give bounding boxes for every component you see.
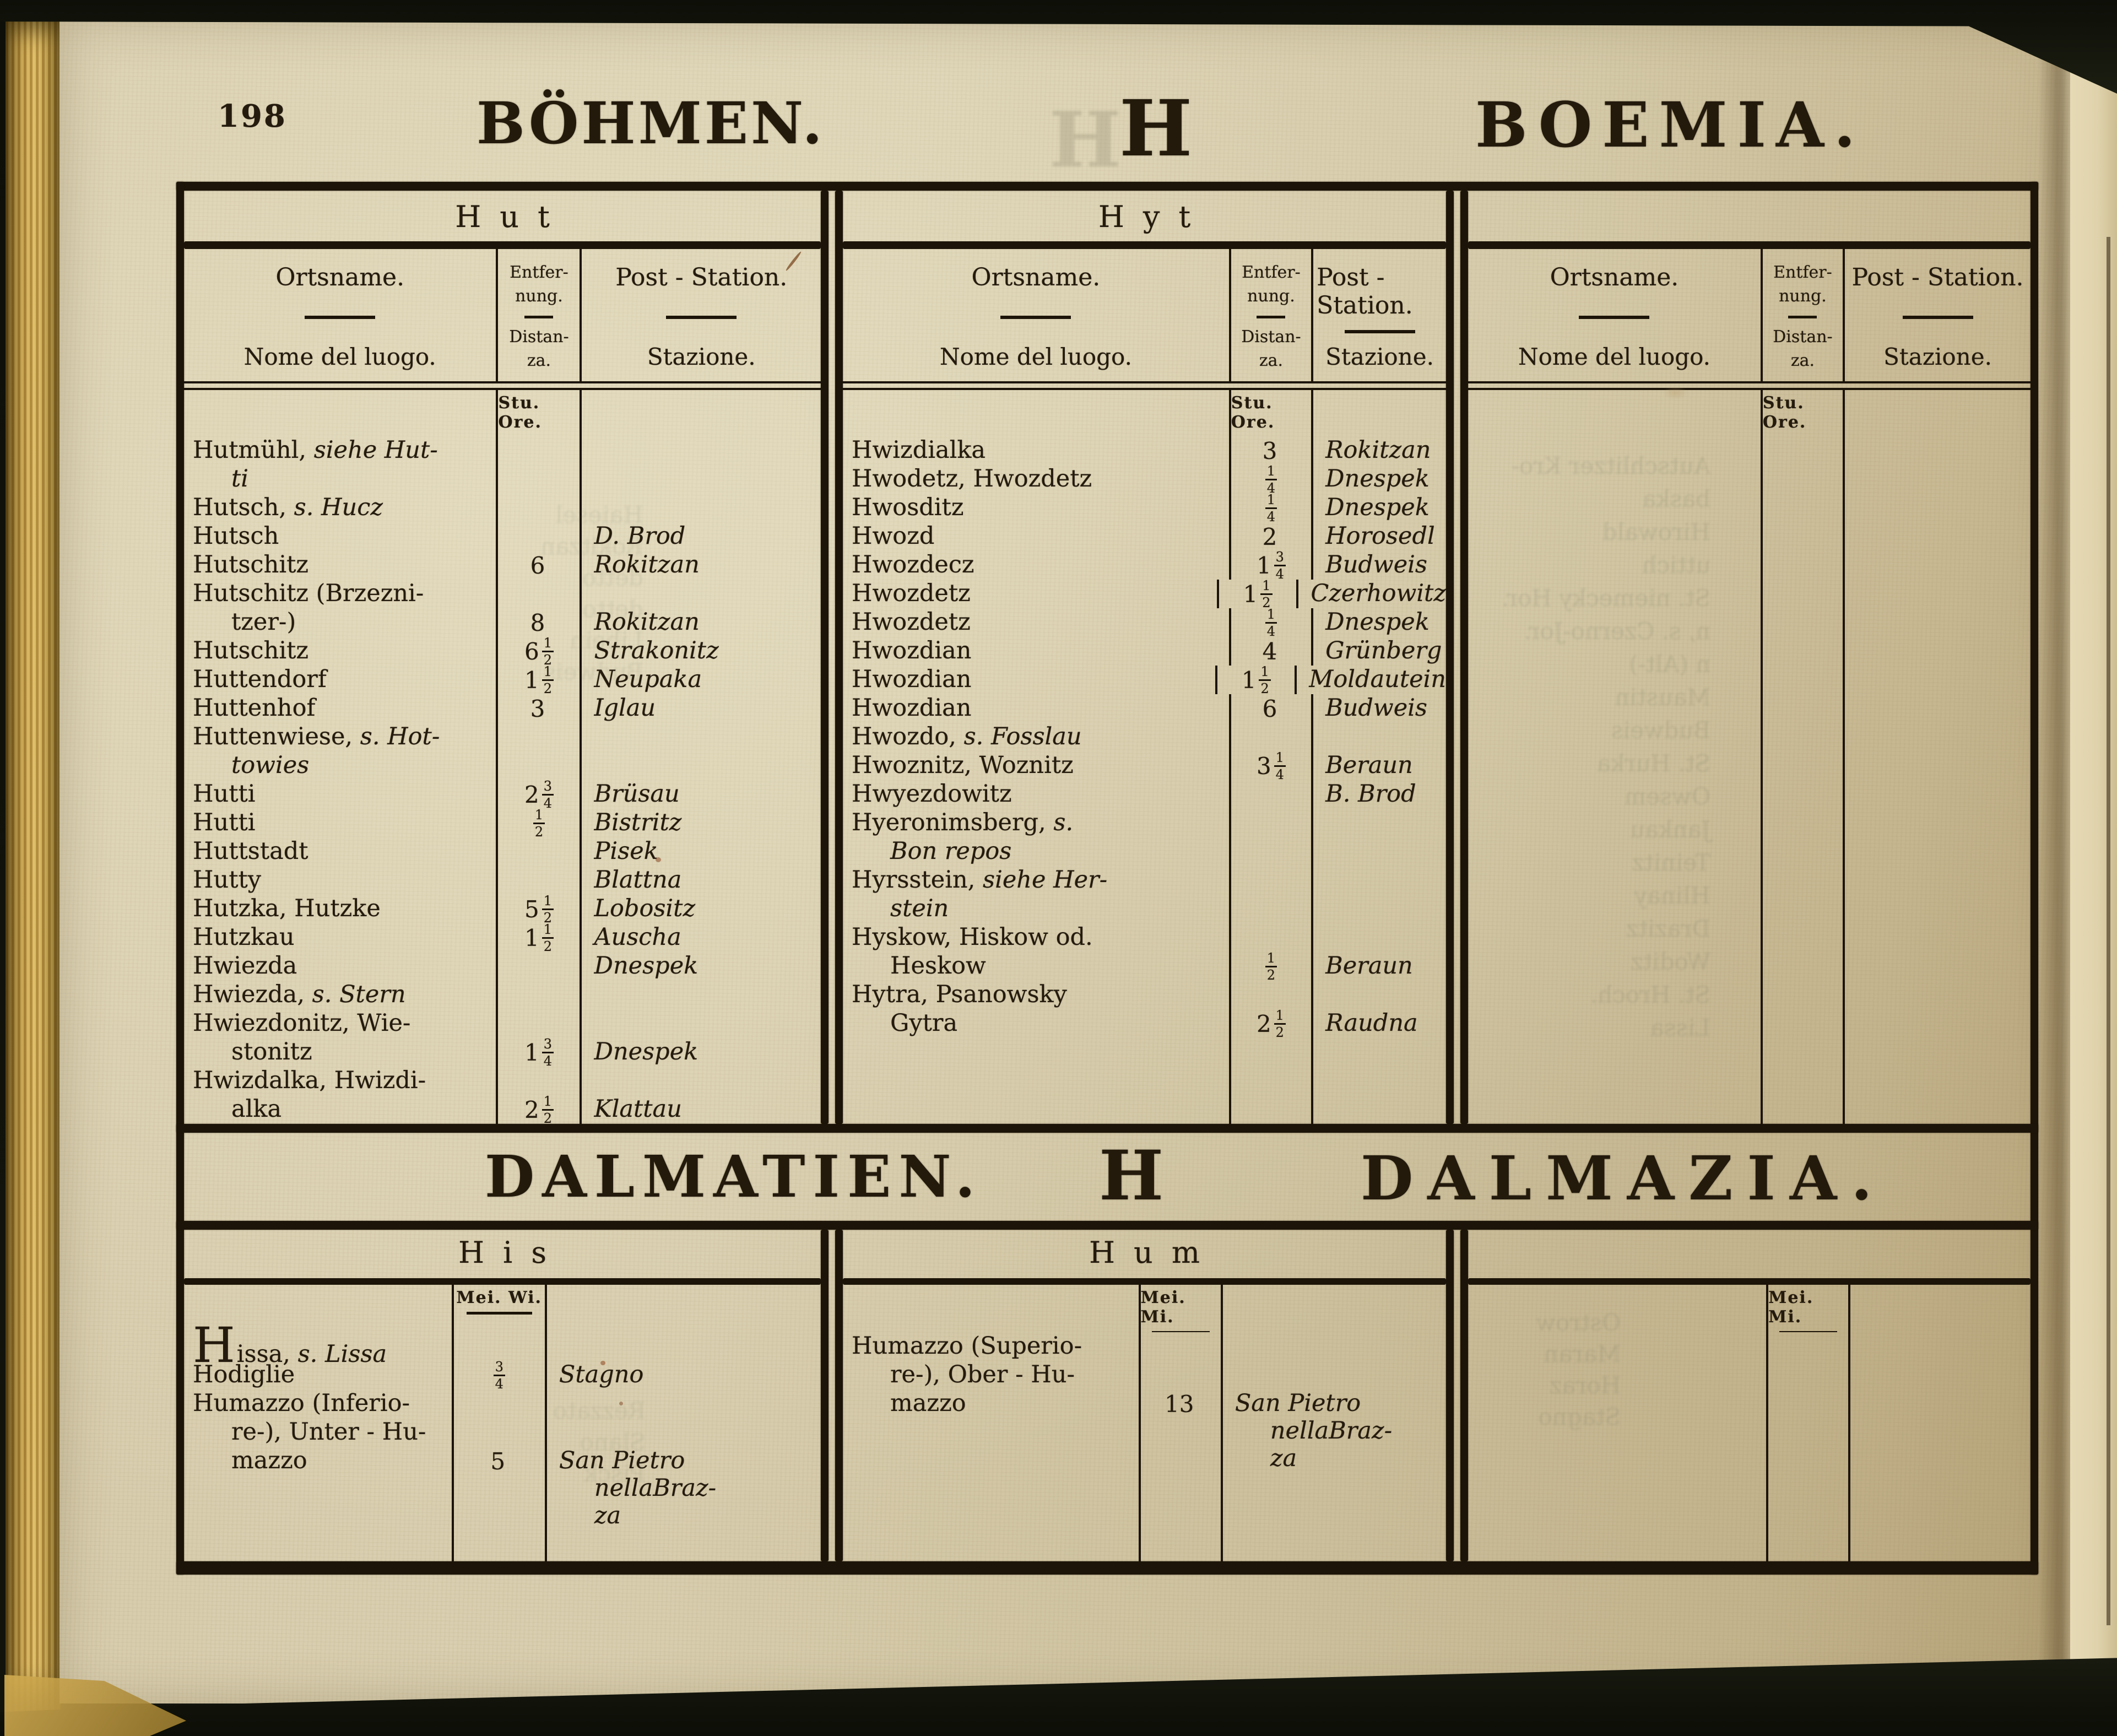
table-row: Hwozdian6Budweis bbox=[843, 694, 1446, 723]
table-row bbox=[1468, 952, 2031, 981]
distance-value bbox=[1761, 1038, 1845, 1067]
post-station: Pisek bbox=[582, 837, 821, 866]
table-row: HuttstadtPisek bbox=[184, 837, 821, 866]
distance-value bbox=[1766, 1533, 1850, 1561]
table-row: Hutti234Brüsau bbox=[184, 780, 821, 809]
postal-table-empty: Ortsname.Nome del luogo. Entfer-nung.Dis… bbox=[1468, 191, 2031, 1124]
table-row: Hwodetz, Hwozdetz14Dnespek bbox=[843, 465, 1446, 494]
post-station bbox=[582, 436, 821, 465]
place-name bbox=[1468, 465, 1761, 494]
distance-value bbox=[1761, 952, 1845, 981]
place-name bbox=[184, 1475, 452, 1504]
column-header-stazione: Stazione. bbox=[647, 343, 756, 370]
place-name: Hutschitz bbox=[184, 551, 496, 580]
place-name bbox=[1468, 608, 1761, 637]
place-name bbox=[1468, 866, 1761, 895]
post-station: Budweis bbox=[1313, 551, 1446, 580]
table-border bbox=[1468, 241, 2031, 249]
table-border bbox=[176, 182, 2038, 191]
distance-value bbox=[1761, 666, 1845, 694]
post-station: Iglau bbox=[582, 694, 821, 723]
distance-value: 12 bbox=[496, 809, 582, 837]
distance-value bbox=[1139, 1533, 1223, 1561]
place-name: ti bbox=[184, 465, 496, 494]
table-border bbox=[843, 241, 1446, 249]
place-name: re-), Unter - Hu- bbox=[184, 1418, 452, 1447]
table-row bbox=[843, 1533, 1446, 1561]
place-name bbox=[843, 1038, 1229, 1067]
facing-page-border bbox=[2107, 237, 2110, 1625]
distance-value bbox=[1761, 608, 1845, 637]
post-station bbox=[1845, 580, 2031, 608]
post-station: Stagno bbox=[547, 1361, 821, 1389]
post-station bbox=[1845, 494, 2031, 522]
post-station bbox=[547, 1533, 821, 1561]
table-row bbox=[1468, 1038, 2031, 1067]
units-row: Stu. Ore. bbox=[1468, 390, 2031, 436]
table-row: Hwozdecz134Budweis bbox=[843, 551, 1446, 580]
distance-value bbox=[1761, 580, 1845, 608]
distance-value bbox=[1761, 866, 1845, 895]
distance-value bbox=[1761, 981, 1845, 1009]
distance-value bbox=[1766, 1447, 1850, 1475]
place-name bbox=[1468, 981, 1761, 1009]
column-header-entfernung: Entfer- bbox=[1242, 263, 1301, 282]
postal-table-empty: Mei. Mi. OstrowMaranHorazStagno bbox=[1468, 1230, 2031, 1561]
place-name bbox=[1468, 1447, 1766, 1475]
table-row bbox=[1468, 981, 2031, 1009]
post-station bbox=[582, 494, 821, 522]
table-border bbox=[176, 182, 184, 1575]
table-row: Hutsch, s. Hucz bbox=[184, 494, 821, 522]
distance-value bbox=[1229, 1038, 1313, 1067]
table-border bbox=[835, 1230, 843, 1561]
place-name: Hytra, Psanowsky bbox=[843, 981, 1229, 1009]
place-name: Hwyezdowitz bbox=[843, 780, 1229, 809]
column-header-distanza: Distan- bbox=[509, 328, 568, 347]
place-name bbox=[843, 1095, 1229, 1124]
table-row: Hutzka, Hutzke512Lobositz bbox=[184, 895, 821, 923]
place-name: Hutzka, Hutzke bbox=[184, 895, 496, 923]
place-name bbox=[843, 1447, 1139, 1475]
distance-value: 8 bbox=[496, 608, 582, 637]
post-station bbox=[582, 580, 821, 608]
place-name: Hwiezda bbox=[184, 952, 496, 981]
distance-value: 112 bbox=[496, 666, 582, 694]
post-station bbox=[1313, 809, 1446, 837]
place-name: Hwiezda, s. Stern bbox=[184, 981, 496, 1009]
page-number: 198 bbox=[218, 98, 287, 134]
column-header-nome: Nome del luogo. bbox=[244, 343, 436, 370]
table-row: Hwiezdonitz, Wie- bbox=[184, 1009, 821, 1038]
distance-value bbox=[1229, 981, 1313, 1009]
distance-value: 6 bbox=[1229, 694, 1313, 723]
column-header-entfernung: Entfer- bbox=[1773, 263, 1832, 282]
bleedthrough-letter: H bbox=[1049, 95, 1121, 185]
table-row: HuttyBlattna bbox=[184, 866, 821, 895]
table-row: Hwozdo, s. Fosslau bbox=[843, 723, 1446, 751]
post-station bbox=[547, 1504, 821, 1533]
place-name bbox=[1468, 751, 1761, 780]
group-title: Hum bbox=[843, 1230, 1446, 1278]
column-header-ortsname: Ortsname. bbox=[275, 263, 404, 291]
place-name: Huttstadt bbox=[184, 837, 496, 866]
post-station bbox=[1845, 522, 2031, 551]
distance-value bbox=[496, 837, 582, 866]
post-station bbox=[1845, 551, 2031, 580]
post-station bbox=[1313, 1067, 1446, 1095]
distance-value: 2 bbox=[1229, 522, 1313, 551]
distance-value bbox=[452, 1475, 547, 1504]
post-station bbox=[1313, 1095, 1446, 1124]
distance-value bbox=[496, 952, 582, 981]
column-header-distanza: Distan- bbox=[1773, 328, 1832, 347]
units-row: Stu. Ore. bbox=[184, 390, 821, 436]
table-row bbox=[184, 1504, 821, 1533]
distance-value bbox=[1229, 923, 1313, 952]
table-row: mazzo13San PietronellaBraz-za bbox=[843, 1389, 1446, 1418]
place-name bbox=[1468, 895, 1761, 923]
table-row: Hyskow, Hiskow od. bbox=[843, 923, 1446, 952]
group-title: Hut bbox=[184, 191, 821, 241]
table-row: re-), Ober - Hu- bbox=[843, 1361, 1446, 1389]
post-station bbox=[1845, 1009, 2031, 1038]
distance-value: 512 bbox=[496, 895, 582, 923]
table-row bbox=[1468, 694, 2031, 723]
place-name: mazzo bbox=[843, 1389, 1139, 1418]
table-border bbox=[176, 1124, 2038, 1133]
post-station bbox=[1845, 1067, 2031, 1095]
table-row: tzer-)8Rokitzan bbox=[184, 608, 821, 637]
distance-value: 612 bbox=[496, 637, 582, 666]
foxing-stain bbox=[656, 857, 661, 862]
table-row: stonitz134Dnespek bbox=[184, 1038, 821, 1067]
post-station: Czerhowitz bbox=[1298, 580, 1446, 608]
column-header-poststation: Post - Station. bbox=[1317, 263, 1443, 320]
distance-value bbox=[1761, 751, 1845, 780]
table-row: Gytra212Raudna bbox=[843, 1009, 1446, 1038]
distance-value bbox=[1229, 895, 1313, 923]
distance-value bbox=[1761, 694, 1845, 723]
column-header-entfernung: Entfer- bbox=[510, 263, 568, 282]
place-name bbox=[1468, 436, 1761, 465]
table-row: ti bbox=[184, 465, 821, 494]
section-title-german: DALMATIEN. bbox=[485, 1143, 983, 1210]
post-station: Raudna bbox=[1313, 1009, 1446, 1038]
place-name: Huttenwiese, s. Hot- bbox=[184, 723, 496, 751]
table-row: Huttenhof3Iglau bbox=[184, 694, 821, 723]
place-name bbox=[1468, 1475, 1766, 1504]
table-row bbox=[1468, 666, 2031, 694]
table-body bbox=[1468, 436, 2031, 1124]
place-name bbox=[843, 1067, 1229, 1095]
distance-value bbox=[1766, 1504, 1850, 1533]
table-border bbox=[843, 381, 1446, 390]
column-header-ortsname: Ortsname. bbox=[972, 263, 1101, 291]
post-station: Brüsau bbox=[582, 780, 821, 809]
place-name bbox=[1468, 1361, 1766, 1389]
post-station: Rokitzan bbox=[1313, 436, 1446, 465]
scanned-book-page: 198 BÖHMEN. H H BOEMIA. DALMATIEN. H DAL… bbox=[0, 0, 2117, 1736]
table-header: Ortsname.Nome del luogo. Entfer-nung.Dis… bbox=[184, 249, 821, 381]
distance-value bbox=[1139, 1418, 1223, 1447]
post-station: Klattau bbox=[582, 1095, 821, 1124]
place-name: Bon repos bbox=[843, 837, 1229, 866]
place-name: alka bbox=[184, 1095, 496, 1124]
post-station bbox=[1845, 981, 2031, 1009]
distance-value: 14 bbox=[1229, 465, 1313, 494]
post-station: B. Brod bbox=[1313, 780, 1446, 809]
table-row: Hwoznitz, Woznitz314Beraun bbox=[843, 751, 1446, 780]
distance-value bbox=[1761, 837, 1845, 866]
post-station: San PietronellaBraz-za bbox=[1223, 1389, 1446, 1418]
post-station bbox=[1313, 1038, 1446, 1067]
table-row bbox=[843, 1067, 1446, 1095]
distance-value: 112 bbox=[1217, 580, 1299, 608]
place-name bbox=[1468, 637, 1761, 666]
table-row: Hutschitz6Rokitzan bbox=[184, 551, 821, 580]
post-station bbox=[1845, 751, 2031, 780]
postal-table-hum: Hum Mei. Mi. Humazzo (Superio-re-), Ober… bbox=[843, 1230, 1446, 1561]
distance-value bbox=[496, 580, 582, 608]
page-fold bbox=[2038, 17, 2072, 1703]
table-row bbox=[1468, 1447, 2031, 1475]
distance-value: 4 bbox=[1229, 637, 1313, 666]
table-row bbox=[1468, 637, 2031, 666]
table-row bbox=[1468, 1533, 2031, 1561]
place-name bbox=[1468, 723, 1761, 751]
table-row: re-), Unter - Hu- bbox=[184, 1418, 821, 1447]
distance-value bbox=[496, 465, 582, 494]
distance-value bbox=[1139, 1332, 1223, 1361]
table-row: Hissa, s. Lissa bbox=[184, 1332, 821, 1361]
table-row: Hwozdian4Grünberg bbox=[843, 637, 1446, 666]
table-header: Ortsname.Nome del luogo. Entfer-nung.Dis… bbox=[843, 249, 1446, 381]
place-name bbox=[1468, 1009, 1761, 1038]
header-divider bbox=[524, 316, 553, 318]
post-station bbox=[1845, 809, 2031, 837]
table-row: HwyezdowitzB. Brod bbox=[843, 780, 1446, 809]
distance-value bbox=[1761, 780, 1845, 809]
post-station bbox=[582, 465, 821, 494]
place-name bbox=[1468, 837, 1761, 866]
post-station bbox=[1850, 1475, 2031, 1504]
post-station bbox=[1845, 666, 2031, 694]
table-row bbox=[1468, 809, 2031, 837]
table-row bbox=[843, 1475, 1446, 1504]
place-name bbox=[1468, 1504, 1766, 1533]
table-row: Huttendorf112Neupaka bbox=[184, 666, 821, 694]
table-row: Hwizdialka3Rokitzan bbox=[843, 436, 1446, 465]
place-name bbox=[843, 1475, 1139, 1504]
column-header-stazione: Stazione. bbox=[1325, 343, 1434, 370]
post-station: Beraun bbox=[1313, 952, 1446, 981]
distance-value bbox=[1761, 1067, 1845, 1095]
place-name bbox=[843, 1504, 1139, 1533]
place-name bbox=[1468, 494, 1761, 522]
post-station bbox=[582, 1009, 821, 1038]
table-row: Hwosditz14Dnespek bbox=[843, 494, 1446, 522]
post-station bbox=[582, 751, 821, 780]
group-title bbox=[1468, 1230, 2031, 1278]
table-row bbox=[1468, 1418, 2031, 1447]
table-row bbox=[184, 1475, 821, 1504]
place-name: Hwiezdonitz, Wie- bbox=[184, 1009, 496, 1038]
post-station: Bistritz bbox=[582, 809, 821, 837]
unit-label: Stu. Ore. bbox=[498, 393, 580, 432]
table-row: Hyrsstein, siehe Her- bbox=[843, 866, 1446, 895]
table-row bbox=[1468, 465, 2031, 494]
distance-value bbox=[496, 436, 582, 465]
post-station bbox=[547, 1418, 821, 1447]
place-name: Hutsch, s. Hucz bbox=[184, 494, 496, 522]
foxing-stain bbox=[600, 1361, 605, 1365]
post-station bbox=[1850, 1332, 2031, 1361]
distance-value bbox=[1761, 895, 1845, 923]
column-header-ortsname: Ortsname. bbox=[1550, 263, 1679, 291]
place-name: stonitz bbox=[184, 1038, 496, 1067]
section-letter: H bbox=[1099, 1136, 1163, 1216]
post-station bbox=[547, 1389, 821, 1418]
post-station bbox=[1850, 1447, 2031, 1475]
post-station bbox=[1313, 723, 1446, 751]
table-row bbox=[1468, 1332, 2031, 1361]
table-row bbox=[1468, 494, 2031, 522]
post-station: Neupaka bbox=[582, 666, 821, 694]
table-row: Hwozd2Horosedl bbox=[843, 522, 1446, 551]
post-station bbox=[1313, 981, 1446, 1009]
post-station bbox=[1845, 780, 2031, 809]
post-station bbox=[1850, 1361, 2031, 1389]
distance-value bbox=[1761, 723, 1845, 751]
distance-value bbox=[1139, 1504, 1223, 1533]
table-body: Hwizdialka3RokitzanHwodetz, Hwozdetz14Dn… bbox=[843, 436, 1446, 1124]
distance-value bbox=[452, 1533, 547, 1561]
table-row: Hwozdian112Moldautein bbox=[843, 666, 1446, 694]
column-header-nome: Nome del luogo. bbox=[1518, 343, 1710, 370]
table-border bbox=[835, 191, 843, 1124]
post-station: Auscha bbox=[582, 923, 821, 952]
place-name bbox=[1468, 580, 1761, 608]
post-station: Beraun bbox=[1313, 751, 1446, 780]
place-name: Hwozdian bbox=[843, 694, 1229, 723]
units-row: Stu. Ore. bbox=[843, 390, 1446, 436]
table-border bbox=[1446, 1230, 1454, 1561]
post-station bbox=[1845, 1038, 2031, 1067]
distance-value bbox=[1229, 1067, 1313, 1095]
distance-value: 112 bbox=[1215, 666, 1297, 694]
table-row: Hutschitz612Strakonitz bbox=[184, 637, 821, 666]
distance-value bbox=[496, 494, 582, 522]
post-station bbox=[1845, 895, 2031, 923]
distance-value bbox=[1229, 1095, 1313, 1124]
distance-value bbox=[1229, 809, 1313, 837]
place-name: Humazzo (Superio- bbox=[843, 1332, 1139, 1361]
place-name: Hwozdecz bbox=[843, 551, 1229, 580]
table-border bbox=[184, 1278, 821, 1285]
table-border bbox=[821, 1230, 829, 1561]
post-station bbox=[1845, 608, 2031, 637]
header-divider bbox=[1257, 316, 1285, 318]
postal-table-hut: Hut Ortsname.Nome del luogo. Entfer-nung… bbox=[184, 191, 821, 1124]
table-row: Hodiglie34Stagno bbox=[184, 1361, 821, 1389]
table-row: alka212Klattau bbox=[184, 1095, 821, 1124]
distance-value bbox=[1761, 436, 1845, 465]
distance-value bbox=[496, 723, 582, 751]
table-border bbox=[1446, 191, 1454, 1124]
table-row bbox=[843, 1504, 1446, 1533]
gold-page-edges bbox=[6, 14, 61, 1715]
place-name: Heskow bbox=[843, 952, 1229, 981]
place-name: Hwozdetz bbox=[843, 608, 1229, 637]
post-station: Dnespek bbox=[1313, 465, 1446, 494]
place-name: Huttendorf bbox=[184, 666, 496, 694]
post-station: D. Brod bbox=[582, 522, 821, 551]
table-row bbox=[1468, 1009, 2031, 1038]
table-row: stein bbox=[843, 895, 1446, 923]
table-border bbox=[1460, 191, 1468, 1124]
distance-value bbox=[1761, 522, 1845, 551]
distance-value: 234 bbox=[496, 780, 582, 809]
place-name bbox=[1468, 923, 1761, 952]
table-row bbox=[1468, 580, 2031, 608]
distance-value bbox=[496, 981, 582, 1009]
place-name: Hutty bbox=[184, 866, 496, 895]
post-station: Dnespek bbox=[1313, 608, 1446, 637]
post-station bbox=[1313, 866, 1446, 895]
place-name bbox=[1468, 666, 1761, 694]
foxing-stain bbox=[619, 1402, 623, 1405]
page-title-german: BÖHMEN. bbox=[477, 89, 825, 157]
table-body bbox=[1468, 1332, 2031, 1561]
distance-value bbox=[1761, 923, 1845, 952]
post-station bbox=[1223, 1504, 1446, 1533]
post-station: Horosedl bbox=[1313, 522, 1446, 551]
post-station bbox=[1223, 1475, 1446, 1504]
post-station: Dnespek bbox=[582, 1038, 821, 1067]
table-row: mazzo5San PietronellaBraz-za bbox=[184, 1447, 821, 1475]
post-station bbox=[1223, 1361, 1446, 1389]
table-row: Hytra, Psanowsky bbox=[843, 981, 1446, 1009]
header-divider bbox=[305, 316, 375, 319]
postal-table-his: His Mei. Wi. Hissa, s. LissaHodiglie34St… bbox=[184, 1230, 821, 1561]
place-name bbox=[1468, 780, 1761, 809]
post-station bbox=[1845, 723, 2031, 751]
place-name bbox=[843, 1418, 1139, 1447]
distance-value bbox=[496, 1067, 582, 1095]
distance-value: 14 bbox=[1229, 608, 1313, 637]
post-station: Rokitzan bbox=[582, 551, 821, 580]
distance-value bbox=[496, 866, 582, 895]
distance-value bbox=[1761, 1009, 1845, 1038]
place-name bbox=[843, 1533, 1139, 1561]
place-name: stein bbox=[843, 895, 1229, 923]
table-body: Hutmühl, siehe Hut-tiHutsch, s. HuczHuts… bbox=[184, 436, 821, 1124]
distance-value: 6 bbox=[496, 551, 582, 580]
place-name: Hutschitz bbox=[184, 637, 496, 666]
place-name bbox=[1468, 1067, 1761, 1095]
distance-value: 314 bbox=[1229, 751, 1313, 780]
distance-value: 212 bbox=[1229, 1009, 1313, 1038]
distance-value: 112 bbox=[496, 923, 582, 952]
column-header-nome: Nome del luogo. bbox=[940, 343, 1132, 370]
table-row: Hwozdetz14Dnespek bbox=[843, 608, 1446, 637]
distance-value bbox=[1229, 780, 1313, 809]
distance-value bbox=[1766, 1475, 1850, 1504]
place-name bbox=[1468, 694, 1761, 723]
table-row bbox=[843, 1038, 1446, 1067]
post-station bbox=[1845, 465, 2031, 494]
